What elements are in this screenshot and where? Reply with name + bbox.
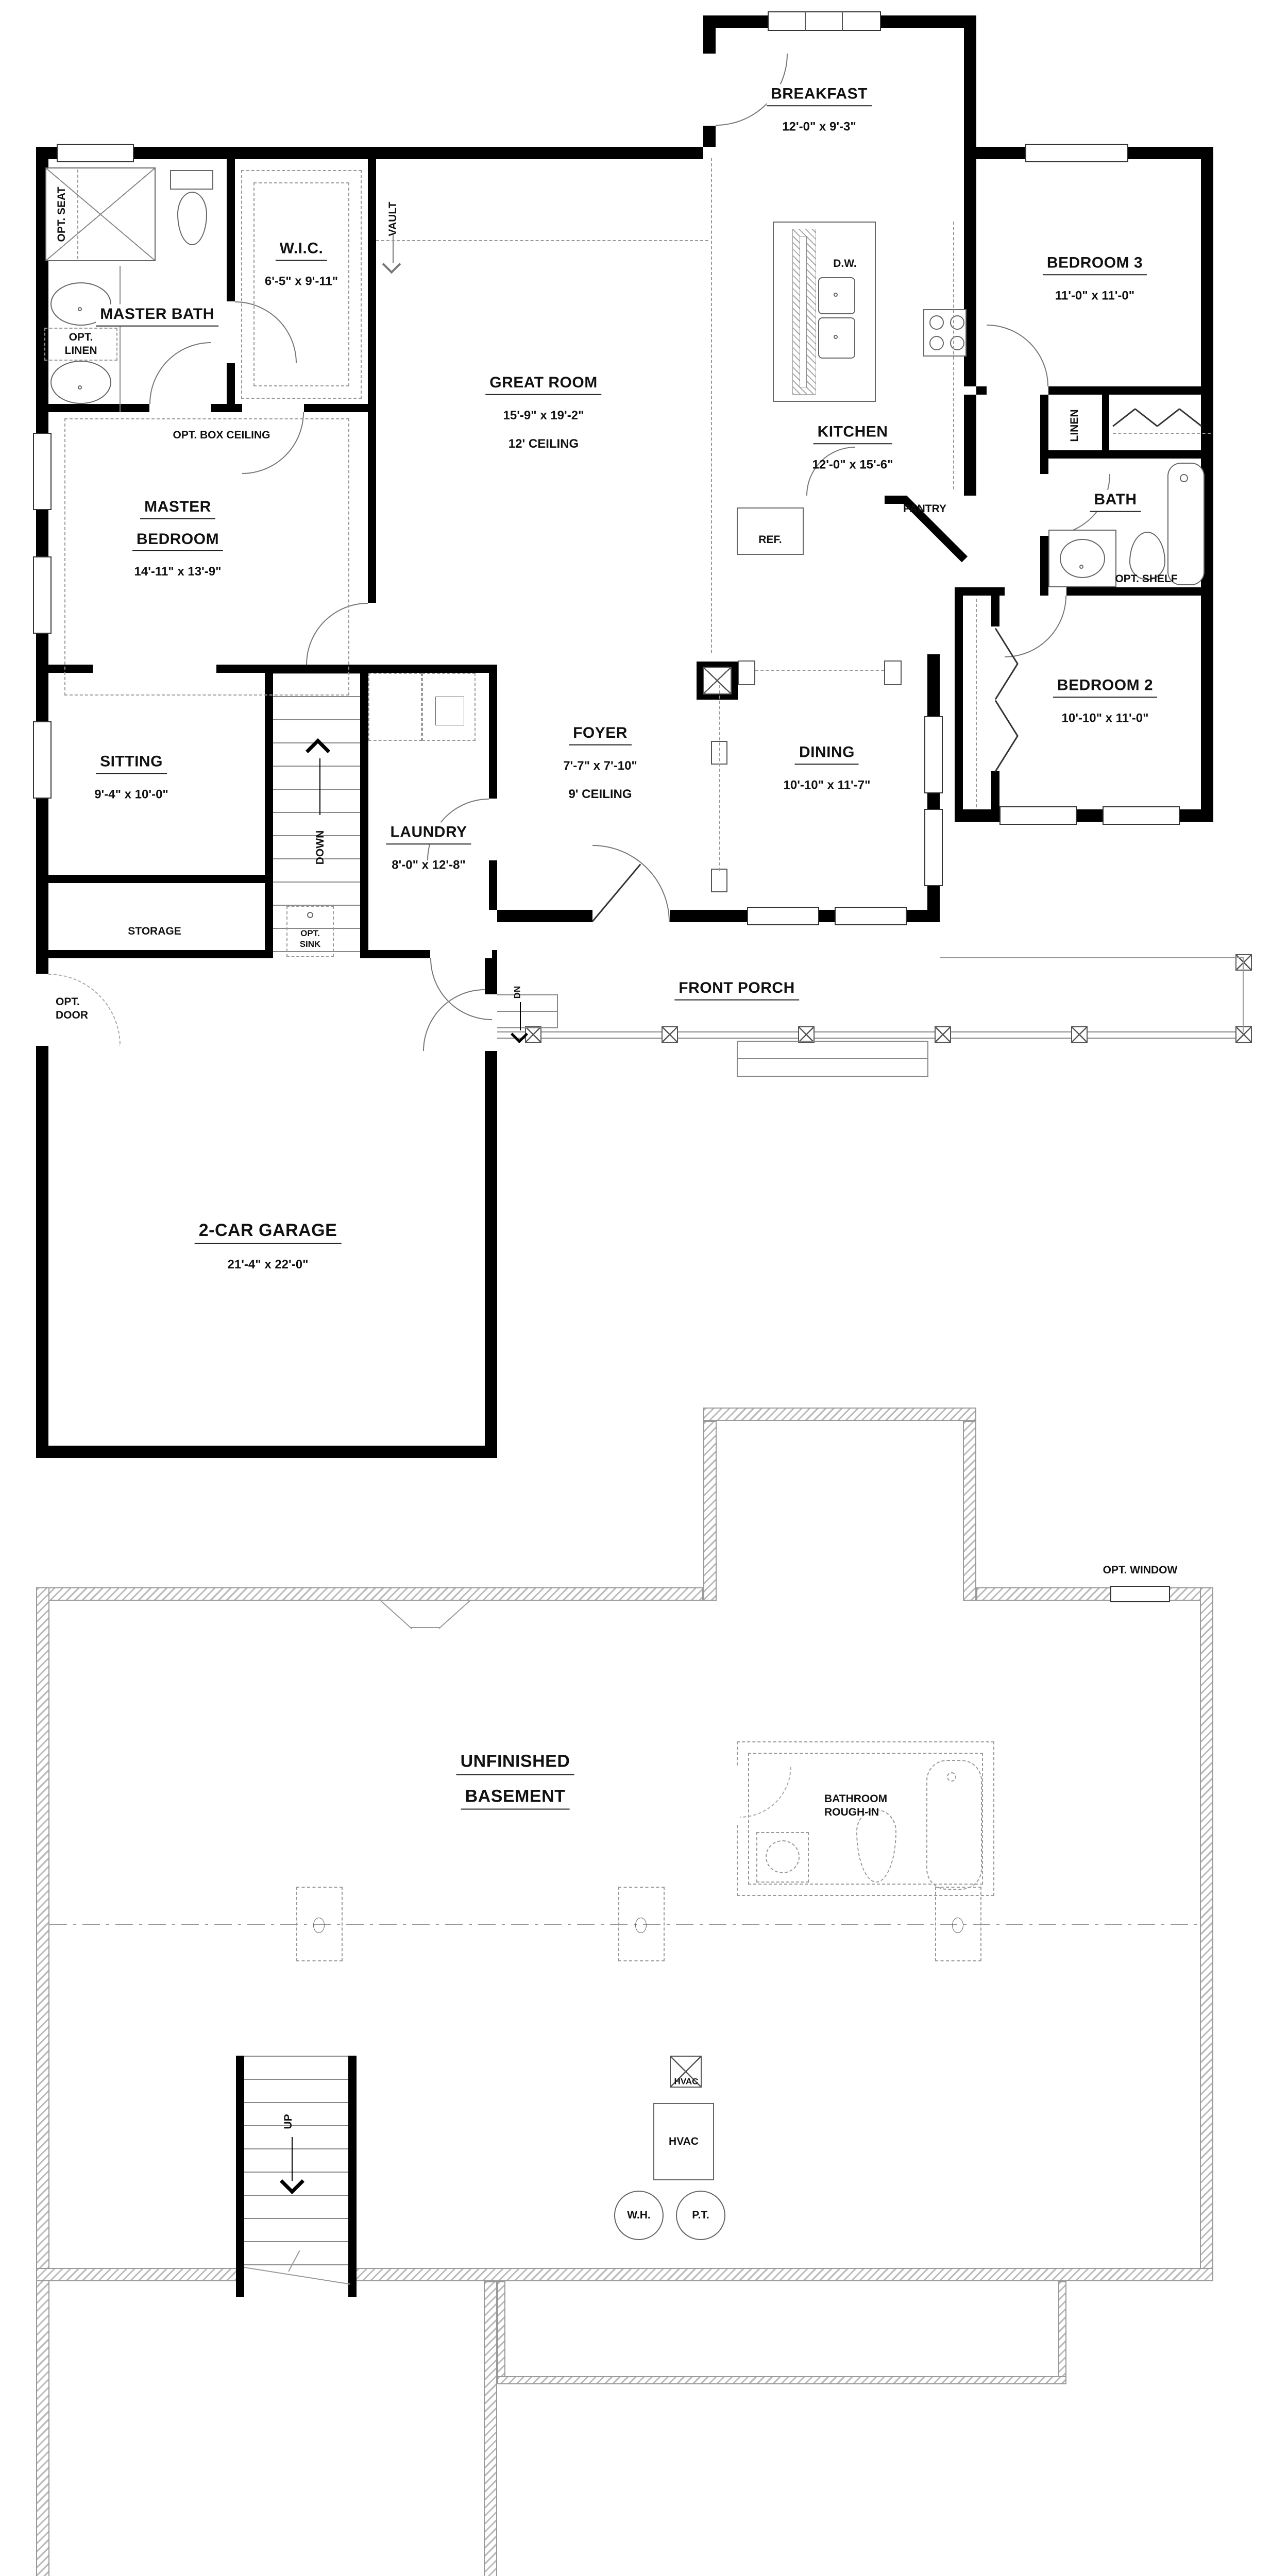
door-swing-arc (149, 342, 211, 404)
room-label-breakfast: BREAKFAST 12'-0" x 9'-3" (767, 74, 872, 145)
room-label-bedroom3: BEDROOM 3 11'-0" x 11'-0" (1043, 243, 1147, 314)
porch-step-edge (927, 1041, 928, 1077)
room-name: BEDROOM 2 (1053, 675, 1157, 698)
room-dims: 11'-0" x 11'-0" (1043, 288, 1147, 303)
sink-drain (78, 307, 82, 311)
room-name: GREAT ROOM (485, 373, 601, 395)
sink-drain (307, 912, 313, 918)
room-label-unfinished-basement: UNFINISHED BASEMENT (456, 1740, 574, 1820)
room-label-sitting: SITTING 9'-4" x 10'-0" (94, 741, 168, 812)
roof-line (1243, 957, 1244, 1032)
room-dims: 12'-0" x 15'-6" (812, 457, 893, 472)
floor-plan: BREAKFAST 12'-0" x 9'-3" GREAT ROOM 15'-… (0, 0, 1288, 2576)
closet-rod-line (976, 599, 977, 807)
window (1103, 806, 1180, 825)
burner (929, 315, 944, 330)
annotation-pressure-tank: P.T. (692, 2209, 709, 2222)
room-dims: 14'-11" x 13'-9" (132, 564, 223, 580)
column (313, 1918, 325, 1933)
room-name: BATH (1090, 490, 1141, 512)
annotation-water-heater: W.H. (627, 2209, 651, 2222)
window (924, 809, 943, 886)
wall (485, 1051, 497, 1458)
room-name: SITTING (96, 752, 167, 774)
beam-line (755, 670, 884, 671)
room-name: W.I.C. (276, 239, 328, 261)
wall (703, 28, 716, 54)
column-post-core (703, 667, 732, 694)
door-swing-arc (987, 325, 1048, 386)
room-dims: 21'-4" x 22'-0" (195, 1257, 342, 1272)
room-name: MASTER (140, 497, 215, 519)
wall (492, 950, 497, 958)
annotation-up: UP (282, 2114, 295, 2129)
counter-line (953, 222, 954, 489)
wall (1048, 450, 1213, 459)
room-label-storage: STORAGE (128, 925, 181, 938)
porch-edge (497, 1038, 1252, 1039)
room-name: BEDROOM (132, 530, 223, 552)
wall (955, 596, 963, 809)
bifold-door (1179, 408, 1202, 427)
wall (489, 860, 497, 910)
wall (1040, 395, 1048, 459)
wall (1040, 459, 1048, 474)
room-dims: 9'-4" x 10'-0" (94, 787, 168, 802)
refrigerator (737, 507, 804, 555)
wall (1102, 395, 1109, 450)
wall (670, 910, 720, 922)
front-door-swing-arc (592, 845, 670, 922)
porch-post (935, 1026, 951, 1043)
window (835, 907, 907, 925)
beam-line (719, 685, 720, 871)
room-label-wic: W.I.C. 6'-5" x 9'-11" (265, 228, 338, 299)
annotation-hvac-unit: HVAC (669, 2135, 699, 2148)
foundation-wall (703, 1421, 717, 1601)
annotation-dishwasher: D.W. (833, 257, 857, 270)
notch-line (438, 1601, 470, 1629)
room-name: MASTER BATH (96, 304, 218, 327)
wall (964, 28, 976, 147)
room-note: 12' CEILING (485, 436, 601, 451)
window-mullion (805, 11, 806, 31)
porch-post (1071, 1026, 1088, 1043)
stair-treads (244, 2056, 348, 2282)
toilet-tank (170, 170, 213, 190)
wall (489, 665, 497, 799)
foundation-wall (703, 1408, 976, 1421)
tub-drain (1180, 474, 1188, 482)
sink-drain (78, 385, 82, 389)
annotation-opt-box-ceiling: OPT. BOX CEILING (173, 429, 270, 442)
wall (36, 875, 273, 883)
bifold-door (1112, 408, 1136, 427)
annotation-refrigerator: REF. (758, 533, 782, 547)
porch-post (1235, 1026, 1252, 1043)
sink-drain (1079, 565, 1083, 569)
porch-step-edge (557, 994, 558, 1028)
wall (955, 587, 1005, 596)
porch-step-edge (737, 1041, 738, 1077)
window (33, 556, 52, 634)
room-dims: 12'-0" x 9'-3" (767, 119, 872, 134)
annotation-hvac-flue: HVAC (674, 2076, 699, 2087)
foundation-wall (348, 2268, 1213, 2281)
wall (1066, 587, 1213, 596)
bifold-door (995, 735, 1019, 772)
roof-line (940, 957, 1244, 958)
room-label-master-bath: MASTER BATH (96, 294, 218, 337)
window (924, 716, 943, 793)
bifold-door (995, 663, 1019, 700)
room-label-dining: DINING 10'-10" x 11'-7" (784, 732, 871, 803)
optional-window (1110, 1586, 1170, 1602)
room-label-bath: BATH (1090, 480, 1141, 522)
wall (36, 950, 265, 958)
vault-arrow-head (382, 255, 401, 274)
notch-line (381, 1601, 412, 1629)
column-pier (738, 660, 755, 685)
foundation-wall (36, 1587, 703, 1601)
wall (368, 950, 430, 958)
window (999, 806, 1077, 825)
annotation-pantry: PANTRY (903, 502, 946, 516)
room-label-bedroom2: BEDROOM 2 10'-10" x 11'-0" (1053, 665, 1157, 736)
foundation-wall (484, 2281, 497, 2576)
porch-step (497, 1011, 558, 1012)
room-name: UNFINISHED (456, 1751, 574, 1775)
room-name: KITCHEN (814, 422, 892, 444)
room-label-front-porch: FRONT PORCH (674, 968, 799, 1011)
washer (368, 673, 422, 741)
room-name: BREAKFAST (767, 84, 872, 106)
annotation-down: DOWN (314, 831, 327, 865)
stair-wall (236, 2056, 244, 2297)
wall (368, 147, 376, 404)
column (952, 1918, 963, 1933)
room-label-foyer: FOYER 7'-7" x 7'-10" 9' CEILING (563, 713, 637, 812)
porch-post (662, 1026, 678, 1043)
foundation-wall (963, 1421, 976, 1601)
porch-foundation-wall (1058, 2281, 1066, 2384)
stair-wall (348, 2056, 357, 2297)
wall (1040, 536, 1048, 596)
foundation-wall (36, 2268, 244, 2281)
wall (497, 910, 592, 922)
wall (227, 363, 235, 404)
room-name: 2-CAR GARAGE (195, 1219, 342, 1244)
foundation-wall (36, 1587, 49, 2576)
sink-drain (834, 335, 838, 339)
annotation-linen: LINEN (1068, 410, 1081, 442)
annotation-opt-sink: OPT. SINK (300, 928, 321, 950)
room-dims: 7'-7" x 7'-10" (563, 758, 637, 773)
annotation-opt-door: OPT. DOOR (56, 995, 88, 1023)
porch-edge (497, 1031, 1252, 1032)
room-note: 9' CEILING (563, 786, 637, 802)
wall (36, 1446, 497, 1458)
room-dims: 15'-9" x 19'-2" (485, 408, 601, 423)
room-name: DINING (795, 742, 859, 765)
tub-drain (947, 1772, 956, 1782)
burner (929, 336, 944, 350)
sink (1060, 539, 1105, 578)
notch-line (410, 1627, 440, 1628)
bifold-door (1134, 408, 1158, 427)
burner (950, 336, 964, 350)
porch-step (737, 1041, 928, 1042)
wall (304, 404, 376, 412)
dryer-door (435, 697, 464, 725)
door-swing-arc (1005, 596, 1066, 657)
closet-rod-line (1113, 433, 1211, 434)
toilet (177, 192, 207, 245)
room-dims: 6'-5" x 9'-11" (265, 274, 338, 289)
window (747, 907, 819, 925)
garage-door-swing-arc (423, 989, 485, 1051)
annotation-dn: DN (512, 986, 522, 999)
wall (976, 386, 987, 395)
sink-drain (834, 293, 838, 297)
annotation-bathroom-rough-in: BATHROOM ROUGH-IN (824, 1792, 887, 1820)
wall (991, 596, 999, 626)
annotation-opt-seat: OPT. SEAT (55, 187, 69, 242)
porch-foundation-wall (497, 2376, 1066, 2384)
room-name: BEDROOM 3 (1043, 253, 1147, 275)
wall (360, 673, 368, 958)
wall (265, 673, 273, 958)
column-pier (711, 869, 727, 892)
porch-foundation-wall (497, 2281, 505, 2384)
porch-step (737, 1058, 928, 1059)
window (768, 11, 881, 31)
annotation-opt-window: OPT. WINDOW (1103, 1564, 1178, 1577)
wall (964, 395, 976, 496)
stair-arrow-stem (319, 758, 320, 815)
bifold-door (995, 700, 1019, 737)
window (1025, 144, 1128, 162)
porch-post (1235, 954, 1252, 971)
window (57, 144, 134, 162)
room-label-laundry: LAUNDRY 8'-0" x 12'-8" (386, 812, 471, 883)
wall (227, 147, 235, 301)
window-mullion (842, 11, 843, 31)
burner (950, 315, 964, 330)
porch-step (497, 994, 558, 995)
room-label-kitchen: KITCHEN 12'-0" x 15'-6" (812, 412, 893, 483)
bifold-door (1157, 408, 1180, 427)
room-label-master-bedroom: MASTER BEDROOM 14'-11" x 13'-9" (132, 487, 223, 590)
wall (368, 412, 376, 603)
column-pier (884, 660, 902, 685)
room-dims: 10'-10" x 11'-7" (784, 777, 871, 793)
rough-in-door-opening (735, 1767, 740, 1824)
vanity-edge (120, 266, 121, 412)
room-name: FRONT PORCH (674, 978, 799, 1001)
annotation-opt-linen: OPT. LINEN (65, 331, 97, 358)
sink (50, 361, 111, 404)
window (33, 721, 52, 799)
wall (991, 771, 999, 809)
wall (1048, 386, 1213, 395)
foundation-wall (1200, 1587, 1213, 2281)
room-dims: 8'-0" x 12'-8" (386, 857, 471, 873)
porch-step (737, 1076, 928, 1077)
annotation-opt-shelf: OPT. SHELF (1115, 572, 1177, 586)
rough-in-sink (766, 1840, 800, 1873)
porch-step-edge (497, 1027, 558, 1028)
room-name: BASEMENT (461, 1785, 570, 1810)
room-label-great-room: GREAT ROOM 15'-9" x 19'-2" 12' CEILING (485, 363, 601, 462)
kitchen-boundary-line (711, 158, 712, 653)
island-bar-slot (800, 236, 807, 387)
shower-seat-line (77, 170, 78, 259)
room-name: LAUNDRY (386, 822, 471, 844)
wall (211, 404, 242, 412)
window (33, 433, 52, 510)
foundation-wall (976, 1587, 1213, 1601)
wall (36, 404, 149, 412)
room-dims: 10'-10" x 11'-0" (1053, 710, 1157, 726)
annotation-vault: VAULT (386, 202, 400, 236)
ceiling-break-line (376, 240, 708, 241)
room-label-garage: 2-CAR GARAGE 21'-4" x 22'-0" (195, 1209, 342, 1283)
column (635, 1918, 647, 1933)
room-name: FOYER (569, 723, 632, 745)
wall (703, 126, 716, 147)
